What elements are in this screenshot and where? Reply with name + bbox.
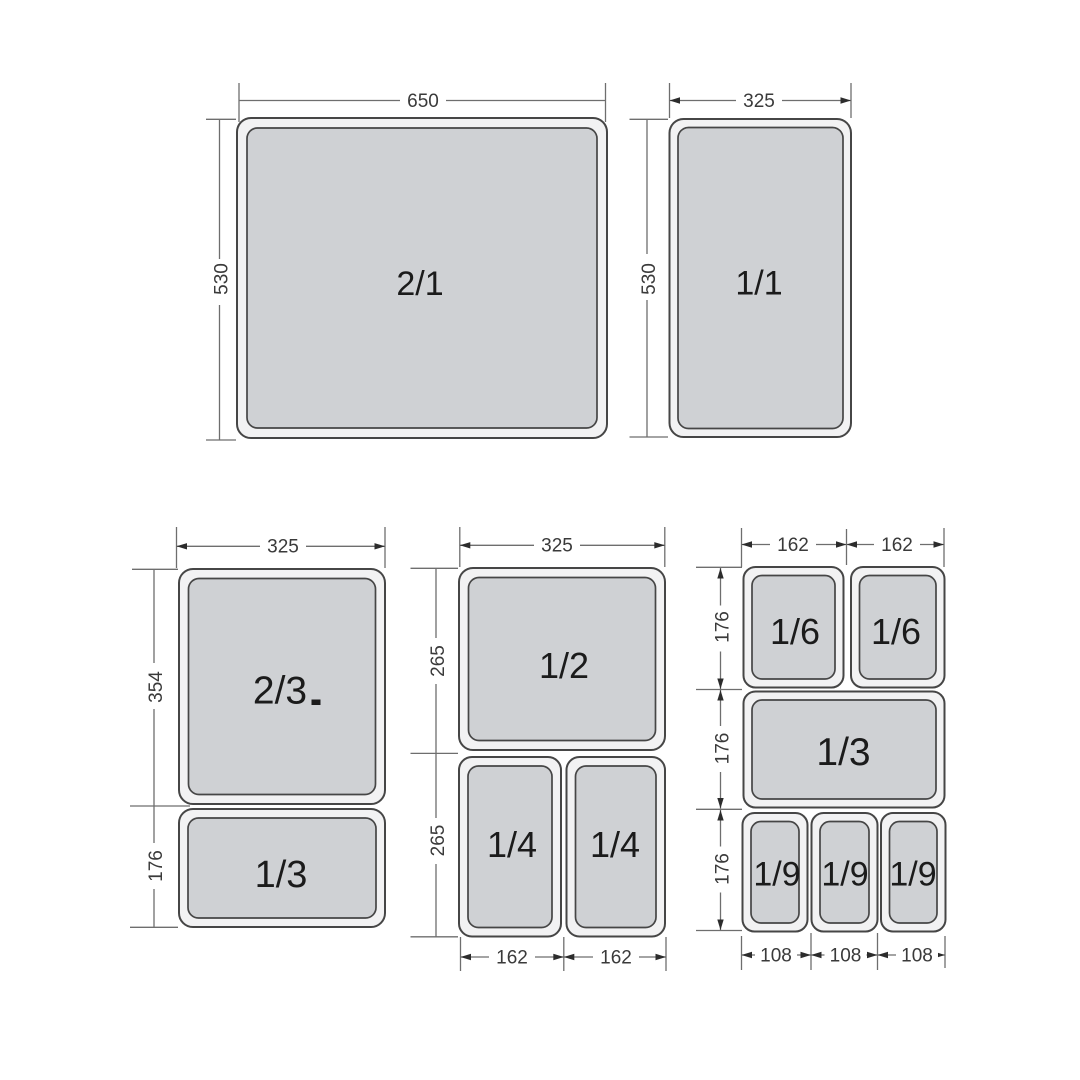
svg-text:1/3: 1/3 bbox=[255, 854, 308, 896]
svg-text:354: 354 bbox=[146, 671, 167, 703]
svg-text:176: 176 bbox=[146, 850, 167, 882]
svg-text:176: 176 bbox=[712, 611, 733, 643]
svg-text:1/1: 1/1 bbox=[735, 265, 782, 303]
svg-text:1/9: 1/9 bbox=[889, 856, 936, 894]
svg-text:1/6: 1/6 bbox=[871, 611, 921, 652]
svg-text:325: 325 bbox=[743, 91, 775, 112]
svg-text:1/3: 1/3 bbox=[816, 731, 870, 774]
svg-text:108: 108 bbox=[760, 945, 792, 966]
svg-text:1/9: 1/9 bbox=[753, 856, 800, 894]
svg-text:1/4: 1/4 bbox=[487, 824, 537, 865]
svg-text:162: 162 bbox=[777, 535, 809, 556]
svg-text:176: 176 bbox=[712, 853, 733, 885]
svg-text:530: 530 bbox=[639, 263, 660, 295]
svg-text:176: 176 bbox=[712, 733, 733, 765]
svg-text:265: 265 bbox=[428, 645, 449, 677]
svg-text:2/3: 2/3 bbox=[253, 670, 307, 713]
svg-text:1/6: 1/6 bbox=[770, 611, 820, 652]
svg-text:1/4: 1/4 bbox=[590, 824, 640, 865]
svg-text:325: 325 bbox=[541, 536, 573, 557]
svg-text:162: 162 bbox=[881, 535, 913, 556]
svg-text:2/1: 2/1 bbox=[396, 265, 443, 303]
svg-text:1/2: 1/2 bbox=[539, 645, 589, 686]
svg-text:1/9: 1/9 bbox=[821, 856, 868, 894]
svg-text:162: 162 bbox=[600, 947, 632, 968]
svg-text:162: 162 bbox=[496, 947, 528, 968]
svg-text:530: 530 bbox=[211, 263, 232, 295]
svg-text:108: 108 bbox=[901, 945, 933, 966]
svg-text:325: 325 bbox=[267, 537, 299, 558]
svg-text:650: 650 bbox=[407, 91, 439, 112]
svg-text:265: 265 bbox=[428, 825, 449, 857]
svg-text:108: 108 bbox=[830, 945, 862, 966]
